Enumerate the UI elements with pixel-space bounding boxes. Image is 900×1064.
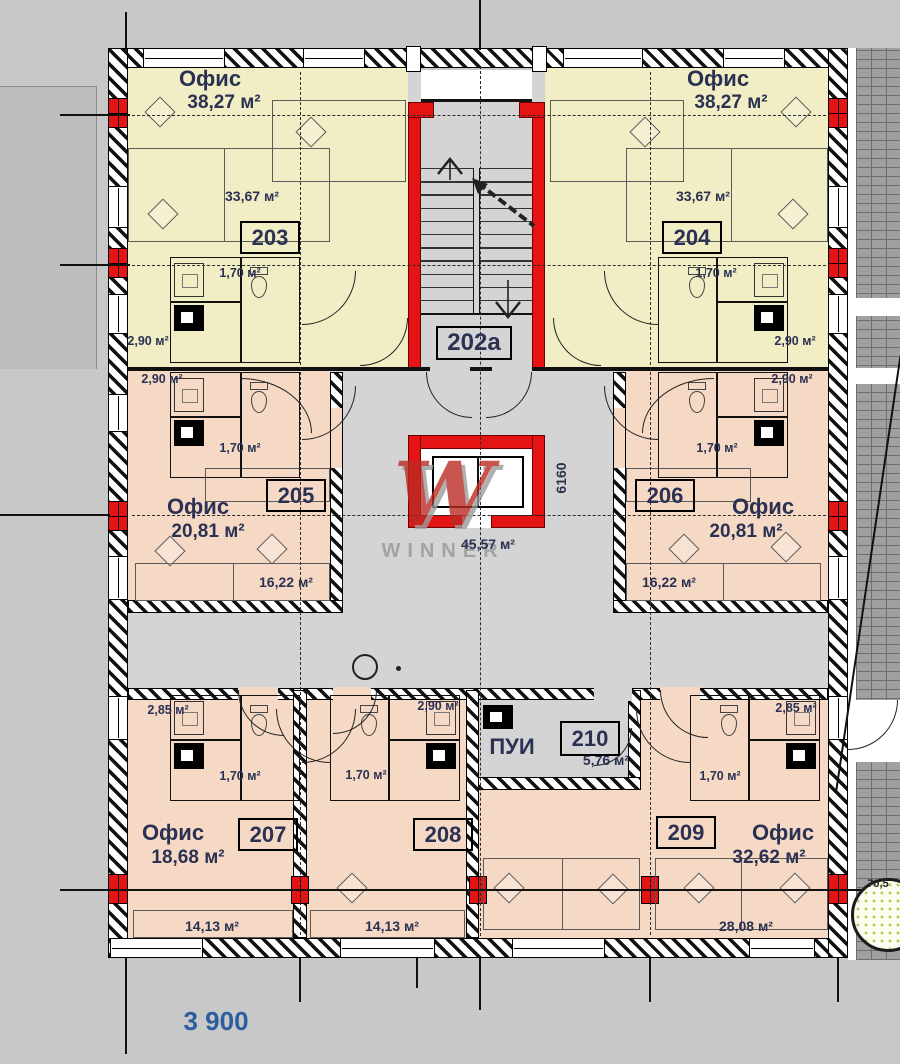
right-partial-dimension: 70,5 [867, 878, 888, 890]
window [108, 294, 128, 334]
corridor-circle-mark [352, 654, 378, 680]
axis-tick [60, 114, 130, 116]
room-209-type: Офис [752, 820, 814, 846]
brick-notch [856, 298, 900, 316]
bathroom-partition [170, 739, 240, 741]
bottom-dimension: 3 900 [183, 1006, 248, 1037]
column [108, 98, 128, 128]
column [108, 501, 128, 531]
column [108, 248, 128, 278]
neighbor-building-block [0, 86, 97, 369]
room-203-total-area: 38,27 м² [187, 92, 260, 114]
bathroom-partition [748, 695, 750, 801]
window [108, 394, 128, 432]
axis-line-horizontal [132, 115, 826, 116]
axis-tick [479, 0, 481, 50]
hall-number-202a: 202a [436, 326, 512, 360]
wall-hatch [128, 600, 343, 613]
axis-tick [60, 889, 900, 891]
room-number-203: 203 [240, 221, 300, 254]
window [108, 186, 128, 228]
bathroom-partition [716, 372, 718, 478]
room-204-main-area: 33,67 м² [676, 188, 730, 204]
axis-tick [416, 958, 418, 988]
room-204-total-area: 38,27 м² [694, 92, 767, 114]
axis-tick [0, 514, 110, 516]
desk [272, 100, 406, 182]
room-205-bath-area: 2,90 м² [141, 372, 182, 386]
room-206-total-area: 20,81 м² [709, 521, 782, 543]
room-207-wc-area: 1,70 м² [219, 769, 260, 783]
window [512, 938, 605, 958]
room-209-wc-area: 1,70 м² [699, 769, 740, 783]
sink [754, 263, 784, 297]
brick-notch [856, 368, 900, 384]
axis-tick [125, 958, 127, 1054]
room-207-main-area: 14,13 м² [185, 918, 239, 934]
room-209-total-area: 32,62 м² [732, 847, 805, 869]
wall-hatch [613, 600, 828, 613]
wall-hatch [478, 777, 641, 790]
bathroom-partition [750, 739, 820, 741]
window [108, 556, 128, 600]
window [723, 48, 785, 68]
room-206-main-area: 16,22 м² [642, 574, 696, 590]
room-206-wc-area: 1,70 м² [696, 441, 737, 455]
vent-shaft [754, 305, 784, 331]
room-205-type: Офис [167, 494, 229, 520]
bathroom-partition [240, 695, 242, 801]
axis-tick [299, 958, 301, 1002]
window [303, 48, 365, 68]
room-number-205: 205 [266, 479, 326, 512]
vent-shaft [754, 420, 784, 446]
bathroom-partition [718, 301, 788, 303]
desk-divider [233, 563, 234, 601]
axis-tick [479, 958, 481, 1010]
axis-tick [649, 958, 651, 1002]
room-208-wc-area: 1,70 м² [345, 768, 386, 782]
window [108, 696, 128, 740]
wall-end-post [406, 46, 421, 72]
room-number-207: 207 [238, 818, 298, 851]
bathroom-partition [170, 301, 240, 303]
vent-shaft [426, 743, 456, 769]
desk-divider [731, 148, 732, 242]
window [110, 938, 203, 958]
column [828, 98, 848, 128]
shaft-height-dimension: 6160 [553, 462, 569, 493]
room-number-210: 210 [560, 721, 620, 756]
floor-plan: W WINNER Офис 38,27 м² 33,67 м² 1,70 м² … [0, 0, 900, 1064]
axis-tick [60, 264, 130, 266]
service-sink [483, 705, 513, 729]
window [749, 938, 815, 958]
room-207-total-area: 18,68 м² [151, 847, 224, 869]
bathroom-partition [718, 416, 788, 418]
door-opening [594, 687, 632, 701]
facade-gap [848, 48, 856, 960]
room-number-204: 204 [662, 221, 722, 254]
desk [550, 100, 684, 182]
bathroom-partition [390, 739, 460, 741]
window [143, 48, 225, 68]
vent-shaft [174, 420, 204, 446]
room-number-208: 208 [413, 818, 473, 851]
room-205-main-area: 16,22 м² [259, 574, 313, 590]
window [828, 186, 848, 228]
axis-tick [125, 12, 127, 50]
room-203-type: Офис [179, 66, 241, 92]
desk-divider [562, 858, 563, 930]
column [828, 501, 848, 531]
room-208-main-area: 14,13 м² [365, 918, 419, 934]
wall-hatch [108, 938, 848, 958]
room-number-206: 206 [635, 479, 695, 512]
room-203-bath-area: 2,90 м² [127, 334, 168, 348]
room-207-bath-area: 2,85 м² [147, 703, 188, 717]
vent-shaft [174, 305, 204, 331]
sink [174, 263, 204, 297]
stair-vestibule [421, 70, 532, 100]
vestibule-edge [421, 99, 532, 102]
corridor-dot-mark [396, 666, 401, 671]
room-number-209: 209 [656, 816, 716, 849]
desk-divider [723, 563, 724, 601]
bathroom-partition [170, 416, 240, 418]
window [340, 938, 435, 958]
room-203-main-area: 33,67 м² [225, 188, 279, 204]
room-205-total-area: 20,81 м² [171, 521, 244, 543]
wall-end-post [532, 46, 547, 72]
stair-direction-arrows [408, 150, 545, 330]
vent-shaft [786, 743, 816, 769]
bathroom-partition [388, 695, 390, 801]
room-208-bath-area: 2,90 м² [417, 699, 458, 713]
hall-area: 45,57 м² [461, 536, 515, 552]
room-203-wc-area: 1,70 м² [219, 266, 260, 280]
room-209-bath-area: 2,85 м² [775, 701, 816, 715]
room-206-bath-area: 2,90 м² [771, 372, 812, 386]
room-204-wc-area: 1,70 м² [695, 266, 736, 280]
room-206-type: Офис [732, 494, 794, 520]
window [563, 48, 643, 68]
room-207-type: Офис [142, 820, 204, 846]
window [828, 294, 848, 334]
partition-wall [128, 367, 828, 371]
watermark-logo: W [368, 452, 518, 536]
room-205-wc-area: 1,70 м² [219, 441, 260, 455]
toilet-icon [720, 705, 740, 739]
room-204-bath-area: 2,90 м² [774, 334, 815, 348]
room-209-main-area: 28,08 м² [719, 918, 773, 934]
service-room-name: ПУИ [489, 734, 534, 760]
column [828, 248, 848, 278]
vent-shaft [174, 743, 204, 769]
window [828, 556, 848, 600]
room-204-type: Офис [687, 66, 749, 92]
axis-tick [837, 958, 839, 1002]
